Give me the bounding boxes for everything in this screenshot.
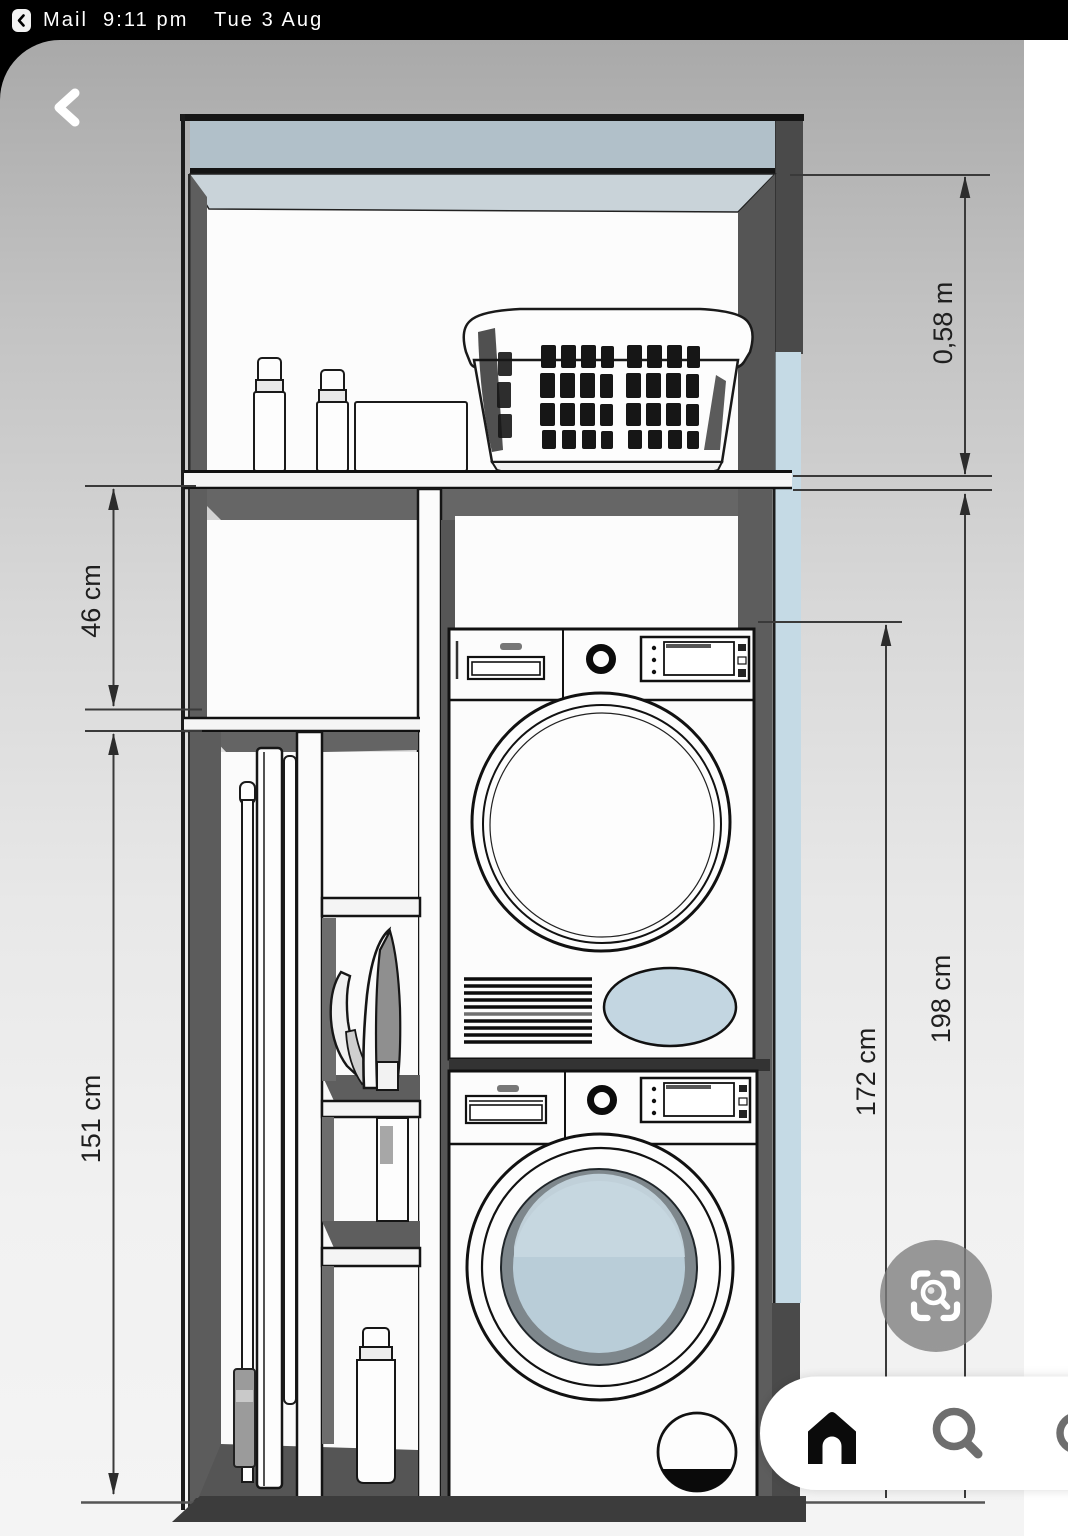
- svg-text:198 cm: 198 cm: [926, 955, 956, 1044]
- svg-text:151 cm: 151 cm: [76, 1075, 106, 1164]
- svg-text:46 cm: 46 cm: [76, 564, 106, 638]
- svg-text:0,58 m: 0,58 m: [928, 282, 958, 365]
- svg-text:172 cm: 172 cm: [851, 1028, 881, 1117]
